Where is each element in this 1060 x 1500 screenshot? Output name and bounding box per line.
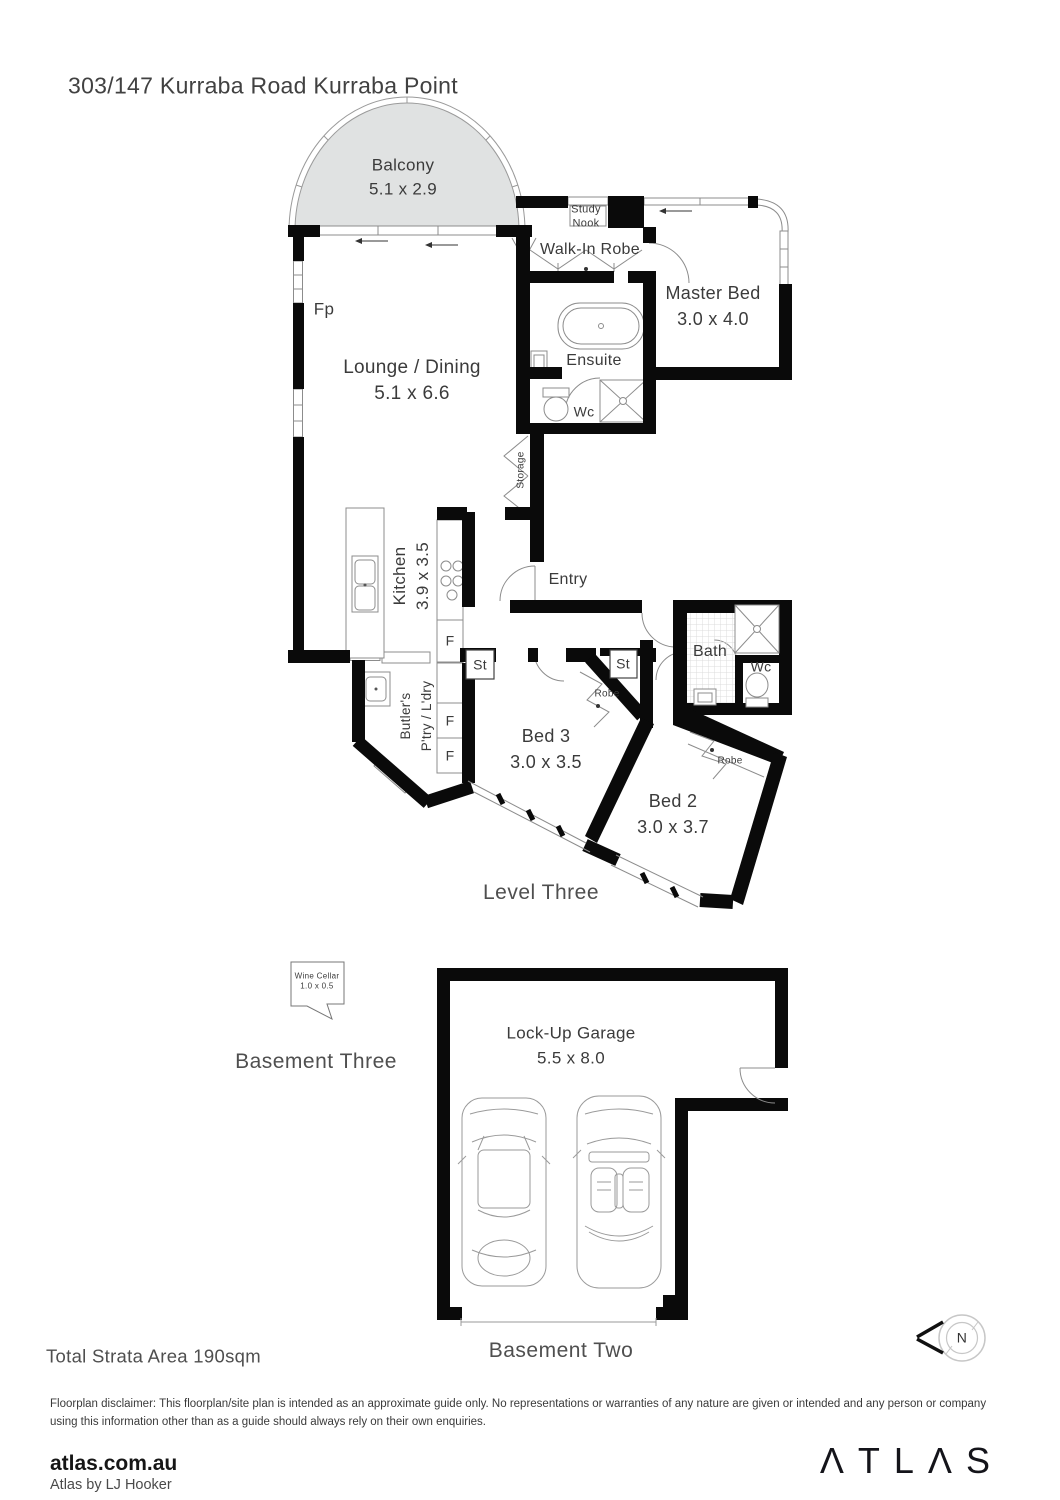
appliance-label-f1: F	[446, 632, 455, 651]
room-dims-master-bed: 3.0 x 4.0	[677, 307, 749, 331]
room-label-ensuite: Ensuite	[566, 350, 621, 372]
study-nook-line1: Study	[571, 203, 601, 217]
room-label-balcony: Balcony	[372, 155, 435, 178]
room-label-bed3: Bed 3	[522, 724, 571, 748]
butlers-line1: Butler's	[395, 681, 416, 752]
garage-walls	[437, 968, 788, 1320]
room-label-storage: Storage	[514, 451, 528, 488]
room-label-kitchen: Kitchen 3.9 x 3.5	[388, 542, 434, 610]
storage-boxes	[466, 650, 637, 679]
car-icon	[458, 1098, 550, 1286]
robe-label-bed3: Robe	[594, 687, 619, 701]
room-label-lounge: Lounge / Dining	[343, 355, 481, 381]
room-label-walk-in-robe: Walk-In Robe	[540, 239, 640, 261]
total-area-label: Total Strata Area 190sqm	[46, 1345, 261, 1370]
website-link[interactable]: atlas.com.au	[50, 1452, 177, 1476]
study-nook-line2: Nook	[571, 217, 601, 231]
wine-cellar-label: Wine Cellar 1.0 x 0.5	[295, 972, 340, 993]
appliance-label-f2: F	[446, 712, 455, 731]
butlers-line2: P'try / L'dry	[416, 681, 437, 752]
room-label-bath-wc: Wc	[751, 658, 772, 677]
room-label-bath: Bath	[693, 641, 727, 663]
atlas-logo: ΛTLΛS	[820, 1440, 1004, 1482]
north-label: N	[957, 1329, 967, 1348]
room-label-entry: Entry	[549, 569, 588, 591]
room-label-butlers: Butler's P'try / L'dry	[395, 681, 437, 752]
room-dims-balcony: 5.1 x 2.9	[369, 179, 437, 202]
kitchen-name: Kitchen	[388, 542, 411, 610]
robe-label-bed2: Robe	[717, 754, 742, 768]
store-label-st2: St	[616, 655, 630, 674]
fireplace-label: Fp	[314, 299, 334, 322]
kitchen-dims: 3.9 x 3.5	[411, 542, 434, 610]
north-compass-icon	[917, 1315, 985, 1361]
page-title: 303/147 Kurraba Road Kurraba Point	[68, 70, 458, 101]
floorplan-page: 303/147 Kurraba Road Kurraba Point Balco…	[0, 0, 1060, 1500]
basement-three-heading: Basement Three	[235, 1048, 397, 1076]
room-label-study-nook: Study Nook	[571, 203, 601, 231]
room-dims-lounge: 5.1 x 6.6	[374, 381, 450, 407]
room-label-bed2: Bed 2	[649, 789, 698, 813]
wine-cellar-name: Wine Cellar	[295, 972, 340, 982]
level-three-heading: Level Three	[483, 879, 599, 907]
store-label-st1: St	[473, 656, 487, 675]
room-label-garage: Lock-Up Garage	[507, 1023, 636, 1046]
wine-cellar-dims: 1.0 x 0.5	[295, 982, 340, 992]
footer-tagline: Atlas by LJ Hooker	[50, 1477, 172, 1493]
room-label-master-bed: Master Bed	[665, 281, 760, 305]
room-dims-bed2: 3.0 x 3.7	[637, 815, 709, 839]
room-dims-garage: 5.5 x 8.0	[537, 1048, 605, 1071]
room-label-ensuite-wc: Wc	[574, 403, 595, 422]
car-icon	[573, 1096, 665, 1288]
disclaimer-text: Floorplan disclaimer: This floorplan/sit…	[50, 1396, 1010, 1432]
appliance-label-f3: F	[446, 747, 455, 766]
room-dims-bed3: 3.0 x 3.5	[510, 750, 582, 774]
basement-two-heading: Basement Two	[489, 1337, 634, 1365]
